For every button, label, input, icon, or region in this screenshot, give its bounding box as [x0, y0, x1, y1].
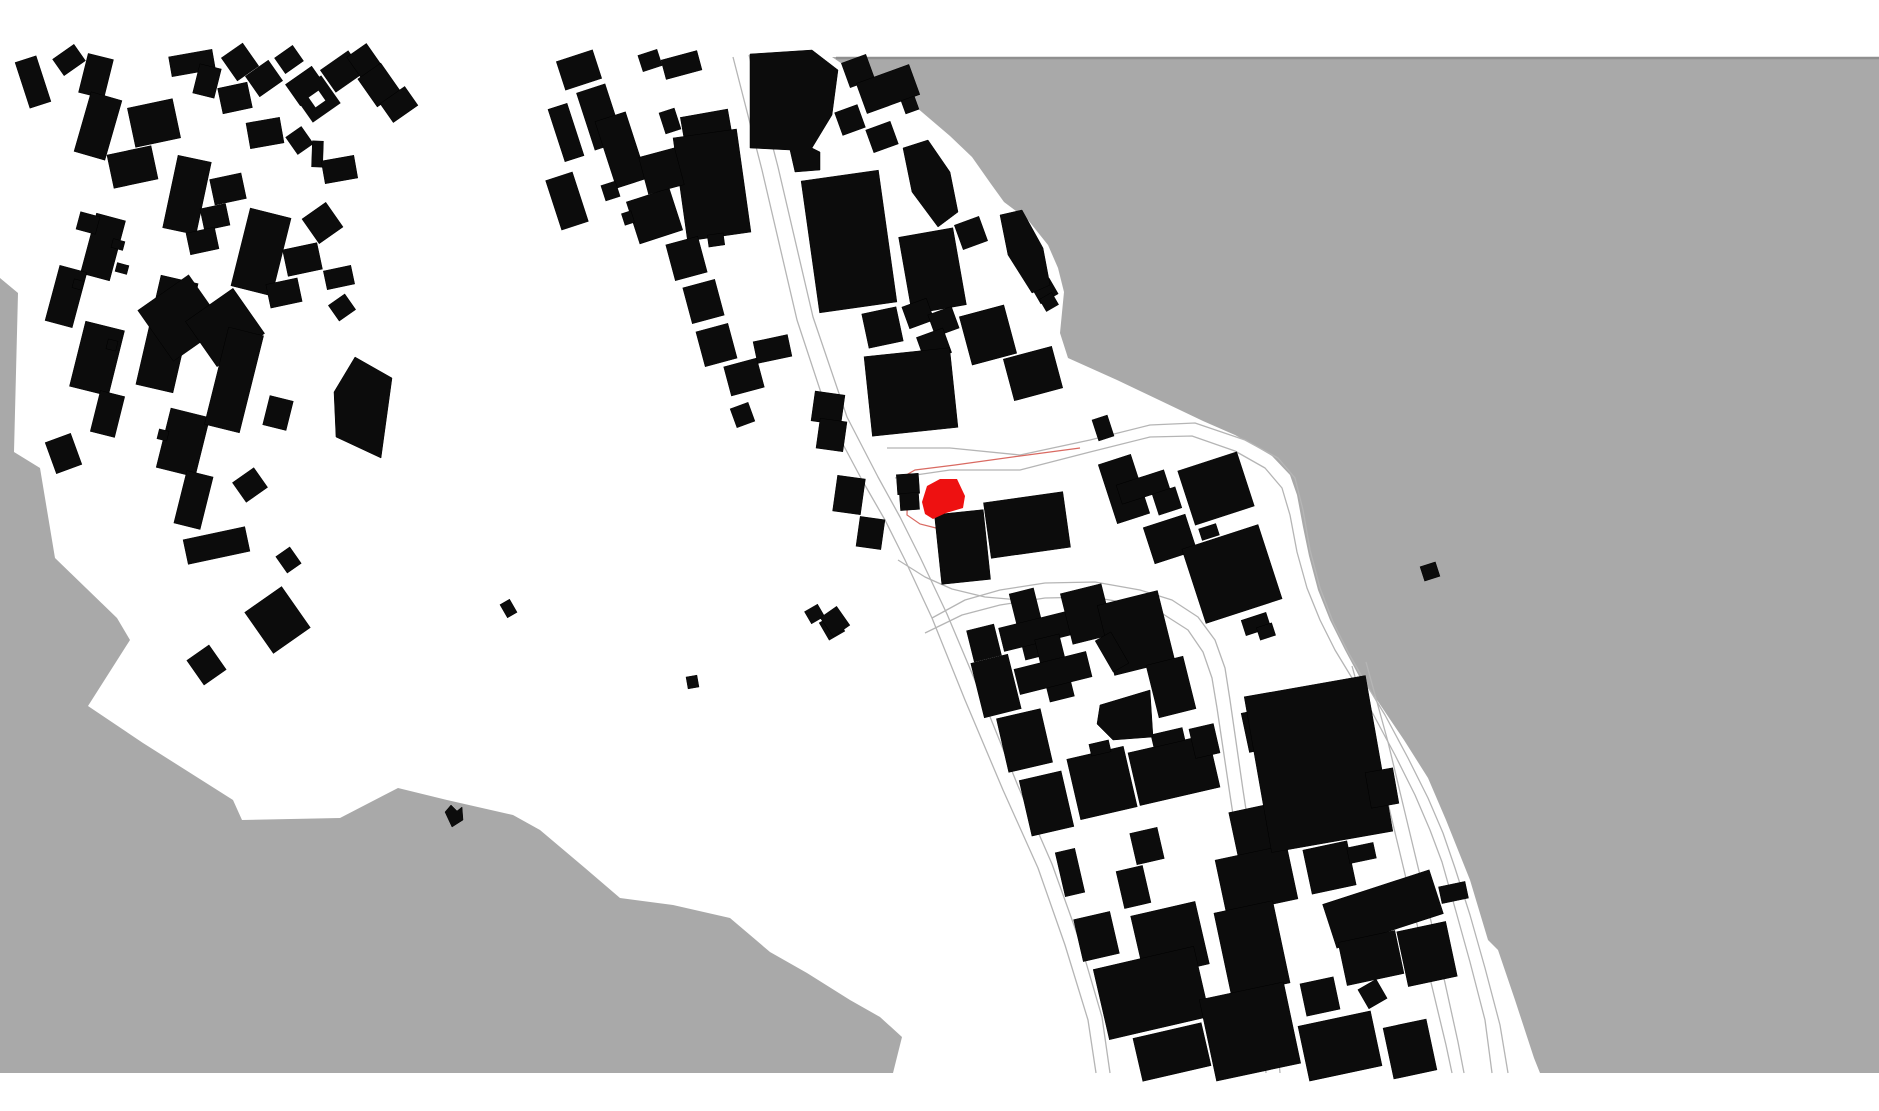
building — [686, 675, 699, 689]
building — [246, 117, 284, 149]
building — [1074, 911, 1120, 961]
building — [683, 279, 724, 323]
building — [275, 45, 304, 73]
building — [833, 475, 866, 515]
building — [156, 408, 210, 477]
building — [696, 323, 737, 366]
building — [1383, 1019, 1437, 1079]
building — [218, 82, 253, 114]
building-parallelogram-hall — [334, 357, 392, 458]
building — [896, 473, 919, 494]
building — [1397, 921, 1458, 986]
building — [90, 391, 124, 438]
building — [1182, 525, 1282, 624]
building — [115, 263, 129, 275]
building — [548, 103, 584, 161]
building — [707, 233, 725, 247]
building — [899, 492, 919, 510]
building — [967, 624, 1002, 662]
building — [74, 92, 122, 160]
building — [183, 527, 250, 565]
building — [983, 492, 1070, 559]
building — [210, 173, 247, 205]
building — [200, 204, 230, 231]
building — [954, 216, 987, 249]
water-southwest-bay — [0, 278, 902, 1073]
building — [1439, 881, 1469, 903]
building — [53, 44, 86, 75]
building — [106, 339, 118, 351]
building — [1178, 452, 1255, 525]
building-shore-wedge-north — [903, 140, 958, 227]
building — [1214, 901, 1290, 996]
building — [302, 202, 343, 243]
building — [45, 265, 87, 327]
building — [638, 49, 662, 71]
building — [856, 516, 885, 549]
building — [546, 172, 589, 230]
building-riverfront-block — [750, 50, 838, 172]
building — [753, 335, 792, 364]
building — [730, 402, 755, 427]
building — [666, 236, 707, 280]
building — [1067, 746, 1137, 819]
building — [1199, 982, 1300, 1081]
building — [157, 429, 169, 441]
building — [245, 587, 311, 654]
building — [866, 121, 899, 152]
building — [971, 654, 1021, 718]
building — [174, 471, 213, 530]
building — [556, 50, 601, 90]
building — [996, 709, 1052, 773]
building — [816, 418, 847, 451]
building — [673, 129, 751, 241]
building — [661, 51, 702, 80]
building — [835, 105, 866, 136]
building — [321, 155, 357, 183]
building — [595, 112, 647, 188]
building — [69, 321, 124, 396]
building — [1215, 845, 1298, 914]
building — [1298, 1011, 1382, 1081]
building — [107, 146, 158, 189]
building — [864, 348, 958, 437]
building — [283, 243, 323, 277]
building — [934, 510, 990, 585]
building — [1300, 977, 1340, 1016]
building — [328, 294, 355, 321]
building — [1092, 415, 1114, 441]
building — [500, 599, 517, 617]
building — [1116, 865, 1151, 908]
building — [1365, 768, 1399, 808]
building — [959, 305, 1016, 365]
building — [862, 307, 904, 349]
building — [127, 99, 180, 148]
building — [1146, 656, 1196, 718]
building — [801, 170, 897, 313]
building — [1019, 771, 1074, 836]
building — [263, 396, 294, 431]
site-plan-map — [0, 0, 1879, 1111]
site-plan-page — [0, 0, 1879, 1111]
building — [15, 56, 51, 108]
building — [45, 433, 82, 473]
building — [659, 108, 681, 134]
building — [1055, 848, 1085, 896]
building — [232, 468, 267, 503]
building — [1358, 979, 1387, 1009]
building — [626, 188, 682, 244]
building — [1347, 842, 1377, 863]
building — [805, 604, 825, 624]
building — [1130, 827, 1164, 864]
building — [286, 126, 314, 154]
building — [899, 228, 967, 314]
building — [323, 265, 354, 289]
building-block-pentagon — [1097, 690, 1153, 740]
building — [187, 645, 226, 685]
building — [276, 547, 301, 573]
building — [724, 358, 765, 396]
